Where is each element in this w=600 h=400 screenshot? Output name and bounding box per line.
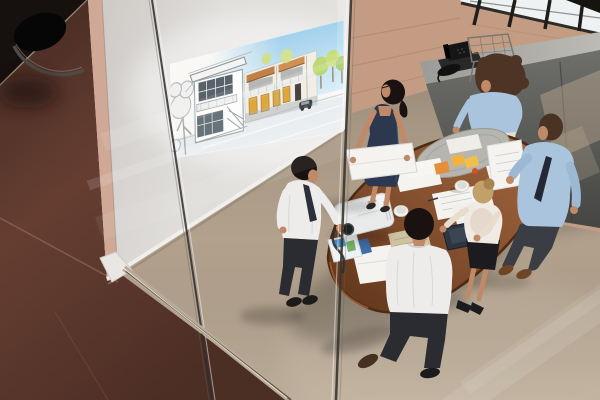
office-floor-shadow — [0, 76, 58, 108]
hand — [404, 155, 410, 161]
curly-hair — [510, 55, 522, 67]
curly-hair — [478, 57, 490, 69]
hair — [404, 208, 434, 240]
phone-key — [461, 48, 463, 50]
face — [538, 126, 548, 140]
hand — [570, 206, 578, 214]
chest — [378, 106, 392, 116]
render-door — [295, 83, 301, 101]
hand — [350, 157, 356, 163]
curly-hair — [517, 77, 529, 89]
phone-key — [459, 52, 461, 54]
cup-rim — [396, 206, 406, 214]
hand — [506, 176, 514, 184]
hair-bun — [484, 179, 495, 190]
scene-canvas — [0, 0, 600, 400]
hand — [440, 226, 447, 233]
face — [308, 170, 318, 183]
white-shirt-back — [386, 243, 453, 314]
person-shadow — [240, 307, 304, 325]
face — [481, 80, 491, 92]
photo-meeting-room — [0, 0, 600, 400]
red-marker — [472, 168, 478, 174]
phone-key — [457, 49, 459, 51]
phone-key — [463, 51, 465, 53]
cup-rim — [457, 181, 467, 189]
hand — [474, 235, 481, 242]
hand — [280, 227, 287, 234]
